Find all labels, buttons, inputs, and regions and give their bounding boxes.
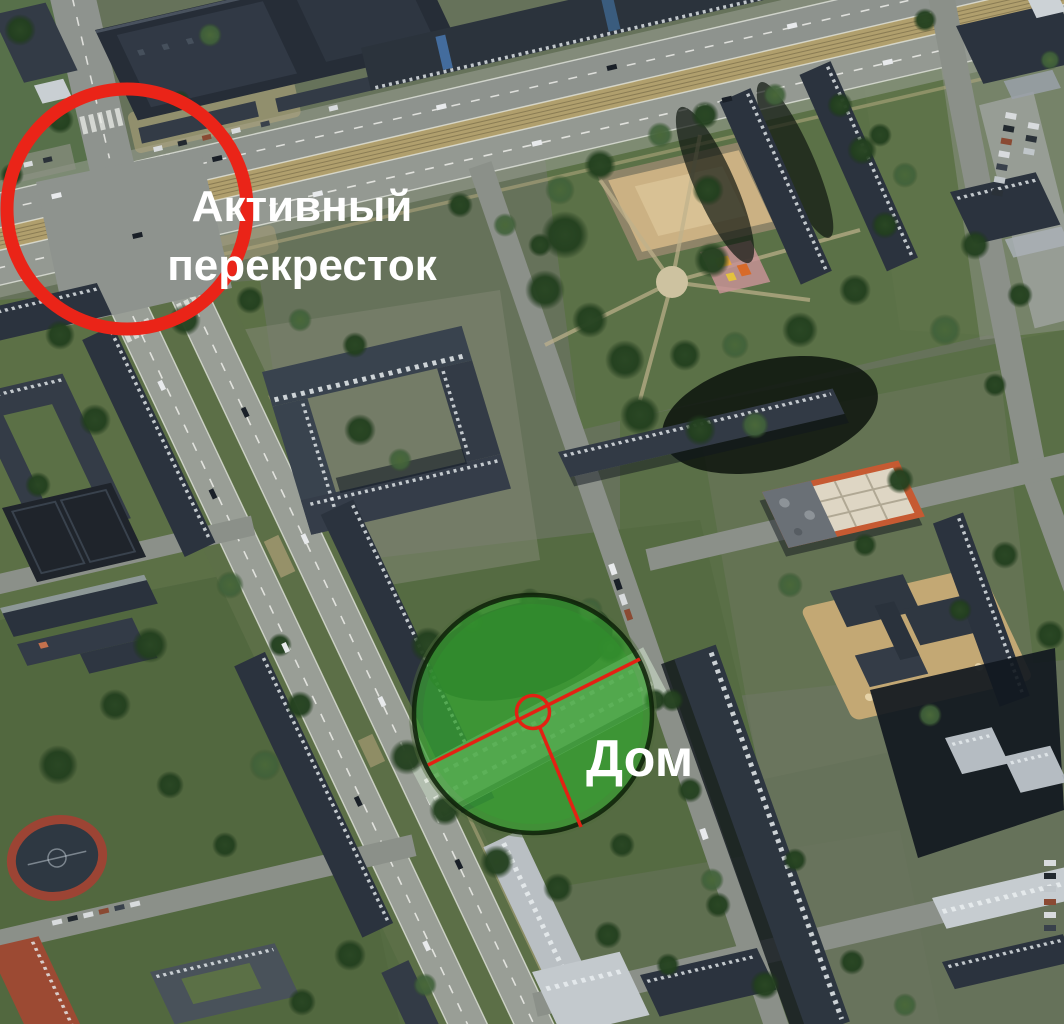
intersection-label-line1: Активный — [192, 182, 413, 231]
park-circular-plaza — [656, 266, 688, 298]
annotated-satellite-screenshot: Активныйперекресток Дом — [0, 0, 1064, 1024]
intersection-label: Активныйперекресток — [167, 178, 437, 296]
house-label: Дом — [586, 729, 693, 789]
satellite-map — [0, 0, 1064, 1024]
intersection-label-line2: перекресток — [167, 241, 437, 290]
